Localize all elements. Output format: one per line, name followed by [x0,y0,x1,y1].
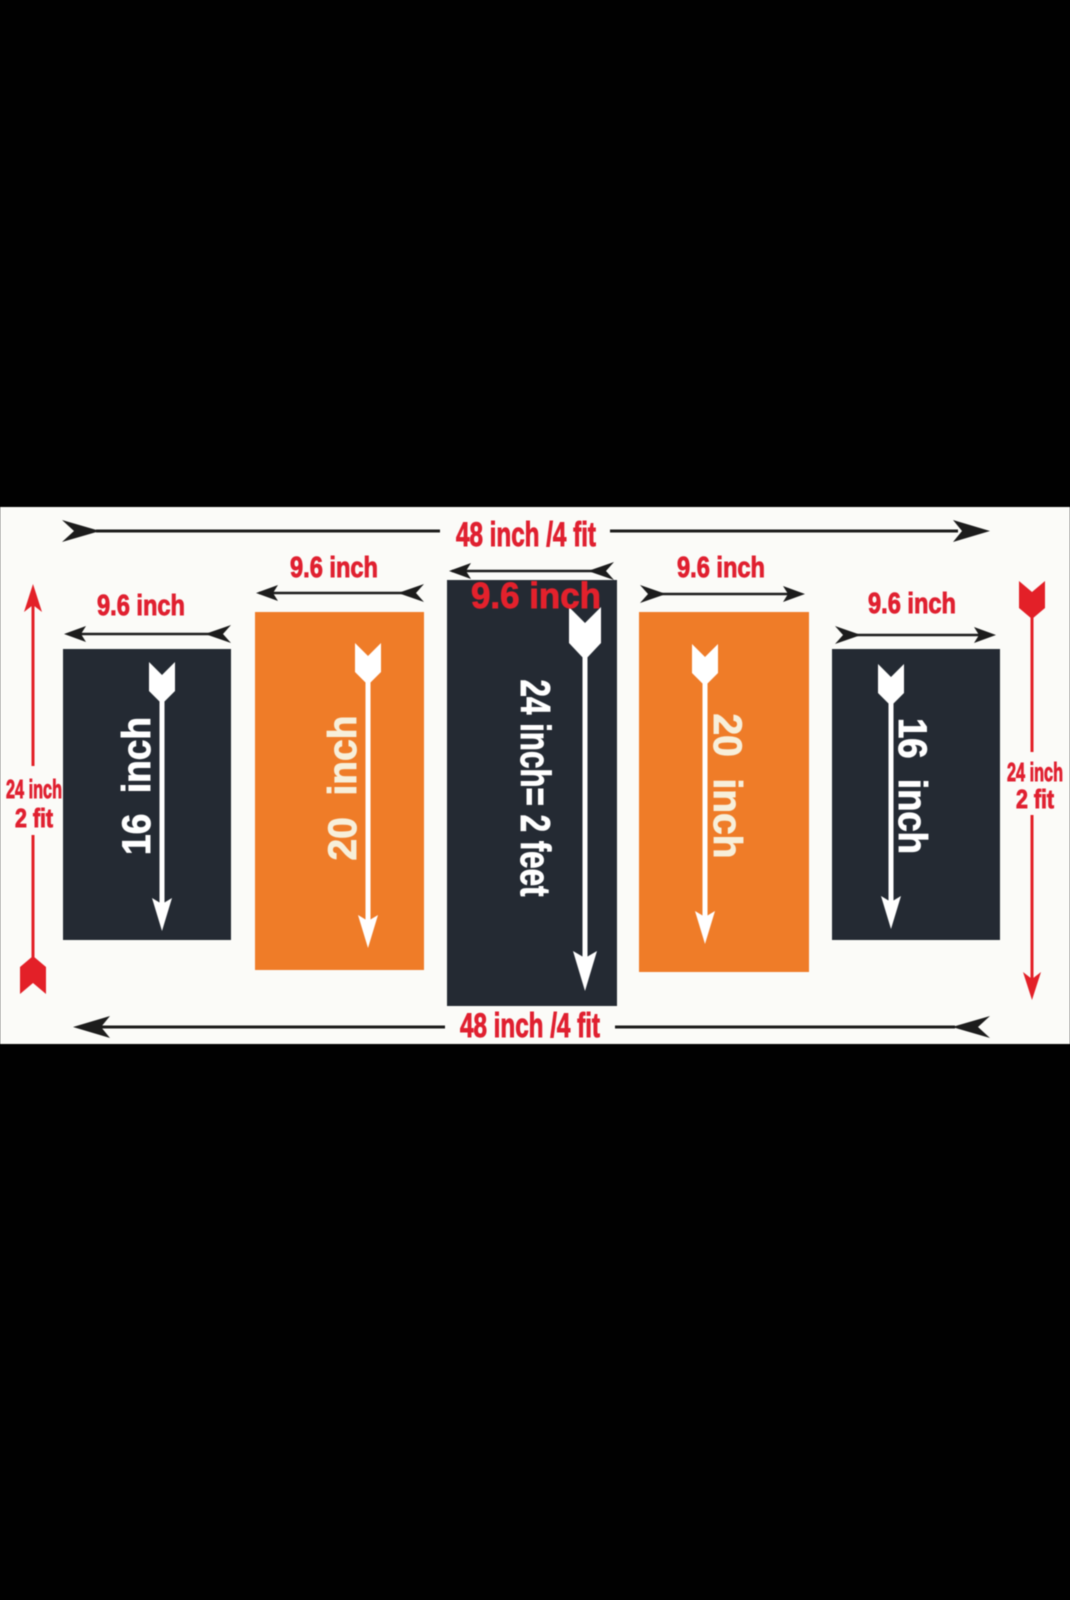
svg-text:9.6 inch: 9.6 inch [97,590,185,622]
svg-text:2 fit: 2 fit [1016,784,1054,814]
svg-text:9.6 inch: 9.6 inch [290,552,378,584]
svg-text:48 inch /4 fit: 48 inch /4 fit [460,1007,600,1045]
svg-text:16 inch: 16 inch [115,717,159,855]
svg-text:48 inch /4 fit: 48 inch /4 fit [456,516,596,554]
svg-text:20 inch: 20 inch [321,716,365,861]
svg-text:24 inch: 24 inch [6,774,62,804]
svg-text:20 inch: 20 inch [705,714,749,859]
svg-text:2 fit: 2 fit [15,803,53,833]
svg-text:9.6 inch: 9.6 inch [677,552,765,584]
svg-text:9.6 inch: 9.6 inch [868,588,956,620]
svg-text:24 inch: 24 inch [1007,757,1063,787]
svg-text:9.6 inch: 9.6 inch [471,575,601,616]
svg-text:16 inch: 16 inch [890,718,934,854]
svg-text:24 inch= 2 feet: 24 inch= 2 feet [512,680,559,897]
